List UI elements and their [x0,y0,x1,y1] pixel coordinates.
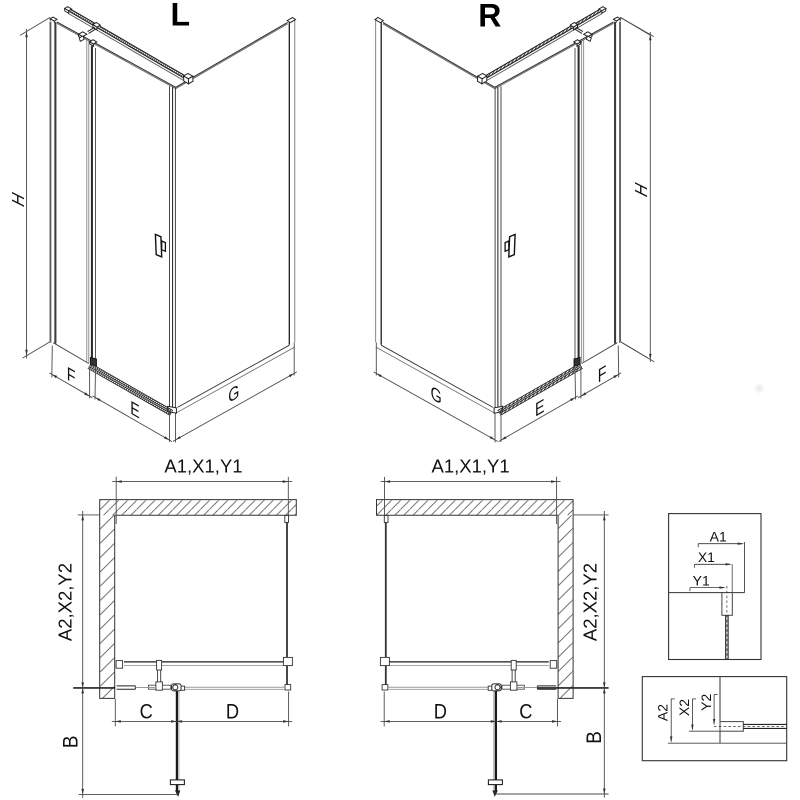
svg-text:A2: A2 [655,704,671,721]
svg-text:A1,X1,Y1: A1,X1,Y1 [164,455,242,476]
svg-text:X1: X1 [698,549,715,565]
svg-text:Y1: Y1 [693,573,710,589]
svg-text:A2,X2,Y2: A2,X2,Y2 [55,563,76,641]
svg-text:X2: X2 [676,699,692,716]
svg-text:C: C [519,700,532,724]
svg-text:C: C [140,700,153,724]
svg-text:D: D [434,700,447,724]
svg-text:R: R [478,0,501,34]
svg-text:B: B [60,735,83,748]
svg-text:D: D [226,700,239,724]
svg-text:A1,X1,Y1: A1,X1,Y1 [432,455,510,476]
svg-text:A2,X2,Y2: A2,X2,Y2 [580,563,601,641]
svg-text:A1: A1 [710,528,727,544]
svg-text:Y2: Y2 [698,694,714,711]
svg-text:B: B [583,731,606,744]
svg-text:L: L [171,0,191,32]
